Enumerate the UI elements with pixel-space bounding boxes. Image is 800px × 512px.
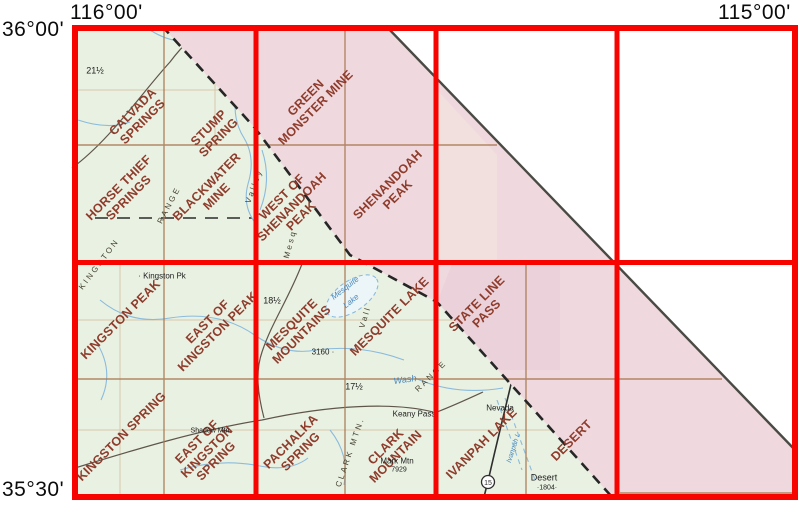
elevation-label: ·1804· [537,484,557,493]
quad-label-pachalka-spring: PACHALKASPRING [261,412,330,481]
quad-label-horse-thief-springs: HORSE THIEFSPRINGS [84,153,164,233]
quad-label-green-monster-mine: GREENMONSTER MINE [266,58,356,148]
quad-label-shenandoah-peak: SHENANDOAHPEAK [351,148,435,232]
elevation-label: 3160 · [312,348,335,357]
quad-label-clark-mountain: CLARKMOUNTAIN [357,418,424,485]
range-label: RANGE [155,185,182,225]
quad-label-kingston-spring: KINGSTON SPRING [75,390,170,485]
quad-label-mesquite-lake: MESQUITE LAKE [348,275,432,359]
state-label-nevada: Nevada [486,404,514,413]
range-label-kingston: KINGSTON [77,237,121,292]
pink-band-pale-patch [437,90,497,262]
quad-mid-lines [75,28,795,497]
red-index-grid [0,0,800,512]
spot-label: 17½ [345,383,363,392]
place-label-desert: Desert [531,474,558,483]
wash-label: Wash [393,374,417,386]
longitude-label-116: 116°00' [70,1,143,25]
longitude-label-115: 115°00' [718,1,791,25]
map-green-background [72,25,798,500]
lake-label-lake: Lake [341,292,360,310]
lake-label-mesquite: Mesquite [329,274,360,301]
valley-label: Vall [357,305,372,329]
pass-label-keany-pass: Keany Pass [393,410,436,419]
latitude-label-35-30: 35°30' [2,478,64,502]
peak-label-kingston-pk: · Kingston Pk [138,272,186,281]
state-line-boundary [162,26,612,497]
peak-label-shadow-mtn: Shadow Mtn [191,427,230,436]
range-label-clark-mtn: CLARK MTN. [334,416,366,488]
range-label-clark: RANGE [413,358,448,393]
grid-lines [72,25,798,500]
quad-label-stump-spring: STUMPSPRING [187,106,241,160]
quad-label-west-of-shenandoah-peak: WEST OFSHENANDOAHPEAK [245,160,338,253]
wash-label-ivanpah: Ivanpah L [505,432,523,464]
quad-label-east-of-kingston-peak: EAST OFKINGSTON PEAK [166,280,260,374]
elevation-label: 7929 [391,466,407,475]
roads [72,27,483,468]
quad-label-mesquite-mountains: MESQUITEMOUNTAINS [260,293,333,366]
unmapped-white-region [386,26,797,452]
spot-label: 18½ [263,297,281,306]
quad-label-state-line-pass: STATE LINEPASS [447,274,518,345]
valley-label: Valley [244,167,265,204]
quad-label-calvada-springs: CALVADASPRINGS [107,86,169,148]
quad-index-map: 15 CALVADASPRINGS STUMPSPRING GREEN [0,0,800,512]
township-lines [75,28,610,497]
quad-label-blackwater-mine: BLACKWATERMINE [171,151,254,234]
peak-label-mark-mtn: Mark Mtn [380,457,413,466]
pink-band [162,26,797,497]
svg-text:15: 15 [484,480,492,487]
spot-label: 21½ [86,67,104,76]
interstate-road [484,380,512,497]
map-artwork: 15 [0,0,800,512]
interstate-shield-icon: 15 [482,476,495,489]
quad-label-ivanpah-lake: IVANPAH LAKE [444,406,520,482]
streams [78,30,535,485]
quad-label-kingston-peak: KINGSTON PEAK [79,278,164,363]
latitude-label-36-00: 36°00' [2,18,64,42]
valley-label-mesq: Mesq [282,229,298,260]
pink-band-dark-patch [437,264,560,370]
quad-label-desert: DESERT [549,418,595,464]
quad-label-east-of-kingston-spring: EAST OFKINGSTONSPRING [169,414,245,490]
map-edge-diagonal [386,26,797,452]
